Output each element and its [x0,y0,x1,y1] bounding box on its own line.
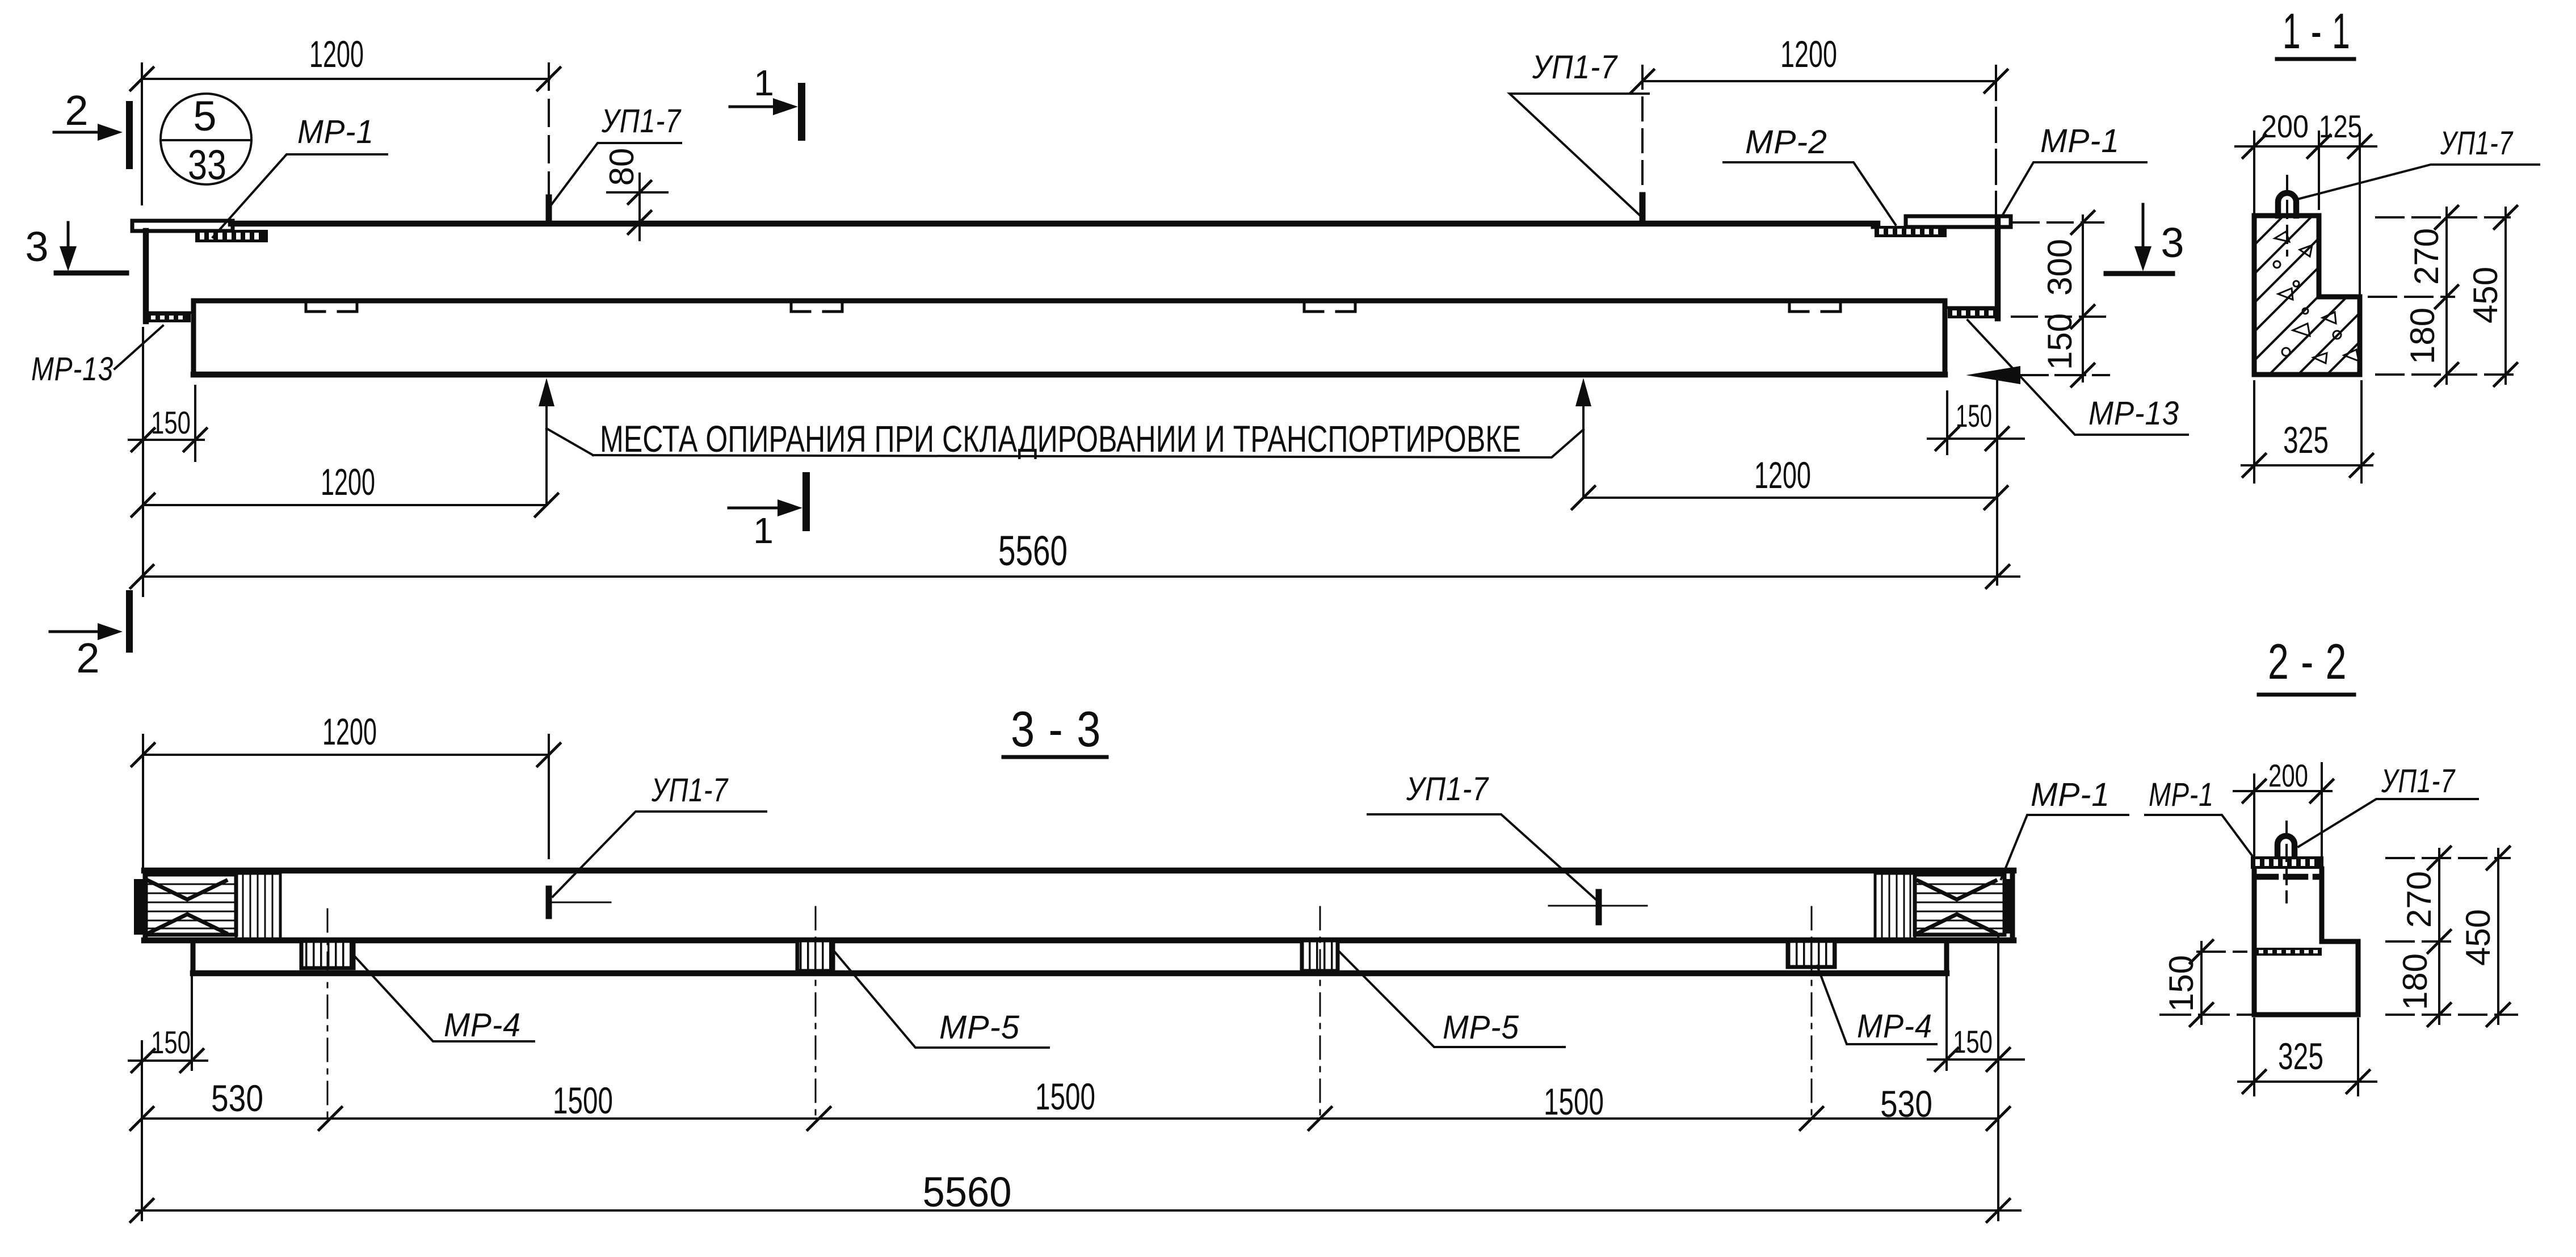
svg-text:2 - 2: 2 - 2 [2268,633,2347,690]
svg-text:2: 2 [76,634,99,682]
svg-text:530: 530 [211,1077,263,1119]
svg-text:2: 2 [65,87,88,134]
svg-text:УП1-7: УП1-7 [2440,125,2514,162]
svg-text:МР-1: МР-1 [2031,776,2110,813]
svg-text:1200: 1200 [309,33,364,75]
svg-text:МР-5: МР-5 [1443,1009,1519,1046]
svg-text:МР-2: МР-2 [1745,124,1827,161]
svg-text:1200: 1200 [321,461,375,503]
svg-text:1500: 1500 [1035,1075,1095,1117]
svg-text:150: 150 [151,405,191,440]
svg-text:150: 150 [2162,955,2200,1012]
svg-text:530: 530 [1880,1083,1932,1125]
svg-text:325: 325 [2283,419,2329,461]
svg-text:270: 270 [2407,228,2445,285]
svg-text:1200: 1200 [1780,33,1837,75]
svg-text:450: 450 [2459,909,2497,966]
svg-text:150: 150 [151,1024,191,1060]
svg-text:200: 200 [2268,758,2308,793]
svg-text:180: 180 [2396,953,2434,1010]
svg-text:1200: 1200 [322,711,377,752]
svg-text:5560: 5560 [998,527,1068,574]
svg-text:1 - 1: 1 - 1 [2283,3,2351,59]
svg-text:3 - 3: 3 - 3 [1011,701,1102,757]
svg-text:270: 270 [2400,871,2438,928]
svg-text:150: 150 [2041,313,2079,370]
svg-text:УП1-7: УП1-7 [2381,763,2456,800]
svg-text:450: 450 [2466,267,2504,323]
svg-text:180: 180 [2403,308,2441,364]
svg-text:МР-13: МР-13 [31,351,114,388]
svg-text:1200: 1200 [1754,454,1811,496]
svg-text:МР-1: МР-1 [297,113,374,150]
svg-text:150: 150 [1956,398,1992,434]
svg-text:УП1-7: УП1-7 [651,772,729,809]
svg-text:МР-1: МР-1 [2149,776,2214,813]
svg-text:МР-13: МР-13 [2088,395,2179,432]
svg-text:МР-1: МР-1 [2040,123,2120,159]
svg-text:1500: 1500 [553,1079,613,1121]
svg-text:УП1-7: УП1-7 [601,103,682,140]
svg-text:1500: 1500 [1544,1081,1604,1123]
svg-text:МР-4: МР-4 [1857,1008,1932,1045]
svg-text:УП1-7: УП1-7 [1532,49,1618,86]
svg-text:3: 3 [2161,219,2184,266]
svg-text:33: 33 [188,141,226,188]
svg-text:325: 325 [2278,1035,2323,1077]
svg-text:УП1-7: УП1-7 [1406,771,1489,808]
svg-text:1: 1 [753,510,774,551]
svg-text:150: 150 [1953,1024,1993,1060]
svg-text:3: 3 [25,223,48,270]
svg-text:1: 1 [754,62,774,103]
svg-text:МР-5: МР-5 [939,1009,1020,1046]
svg-text:5: 5 [193,93,216,140]
svg-text:5560: 5560 [923,1168,1012,1216]
svg-text:200: 200 [2261,108,2309,144]
svg-text:МР-4: МР-4 [444,1007,521,1044]
svg-text:80: 80 [603,148,641,186]
svg-text:300: 300 [2041,239,2079,296]
svg-text:МЕСТА ОПИРАНИЯ ПРИ СКЛАДИРОВАН: МЕСТА ОПИРАНИЯ ПРИ СКЛАДИРОВАНИИ И ТРАНС… [600,418,1521,460]
